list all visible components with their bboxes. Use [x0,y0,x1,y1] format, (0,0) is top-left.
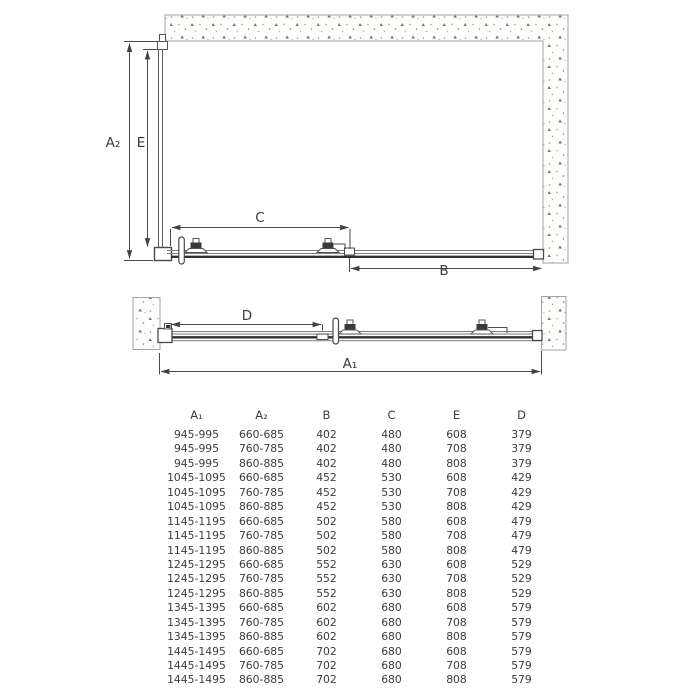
table-cell: 808 [424,587,489,601]
wall-section [165,15,568,263]
column-header-a1: A₁ [164,404,229,426]
table-cell: 608 [424,558,489,572]
table-cell: 680 [359,645,424,659]
table-cell: 608 [424,471,489,485]
table-cell: 660-685 [229,428,294,442]
table-cell: 608 [424,428,489,442]
door-handle [179,237,185,264]
table-cell: 1445-1495 [164,659,229,673]
table-cell: 808 [424,630,489,644]
table-cell: 429 [489,471,554,485]
table-cell: 660-685 [229,515,294,529]
technical-drawing [0,0,700,400]
table-cell: 552 [294,558,359,572]
top-view [124,15,568,272]
table-cell: 580 [359,544,424,558]
roller-carriage [339,320,361,334]
table-cell: 552 [294,572,359,586]
dim-label-b: B [439,263,448,279]
table-cell: 1445-1495 [164,673,229,687]
dim-label-c: C [255,210,264,226]
table-cell: 1145-1195 [164,515,229,529]
table-cell: 760-785 [229,616,294,630]
column-header-b: B [294,404,359,426]
table-cell: 760-785 [229,442,294,456]
table-cell: 860-885 [229,457,294,471]
table-cell: 1345-1395 [164,630,229,644]
wall-profile-top [158,42,168,50]
table-cell: 1245-1295 [164,558,229,572]
table-cell: 379 [489,457,554,471]
table-cell: 1145-1195 [164,544,229,558]
table-cell: 708 [424,616,489,630]
table-cell: 608 [424,645,489,659]
size-table: A₁ A₂ B C E D 945-995660-685402480608379… [164,404,556,688]
table-cell: 452 [294,486,359,500]
table-cell: 530 [359,486,424,500]
table-cell: 552 [294,587,359,601]
dim-label-e: E [137,135,146,151]
table-cell: 860-885 [229,587,294,601]
wall-profile-left [158,329,172,343]
table-cell: 452 [294,500,359,514]
table-cell: 660-685 [229,601,294,615]
table-cell: 379 [489,428,554,442]
column-header-c: C [359,404,424,426]
table-cell: 379 [489,442,554,456]
table-cell: 808 [424,500,489,514]
table-cell: 630 [359,572,424,586]
table-cell: 429 [489,500,554,514]
table-cell: 630 [359,558,424,572]
table-cell: 479 [489,529,554,543]
table-cell: 708 [424,529,489,543]
table-cell: 579 [489,673,554,687]
table-cell: 708 [424,659,489,673]
size-table-header: A₁ A₂ B C E D [164,404,556,426]
table-cell: 580 [359,529,424,543]
table-cell: 680 [359,659,424,673]
table-cell: 402 [294,442,359,456]
table-cell: 702 [294,673,359,687]
dimension-d [170,325,323,331]
table-cell: 860-885 [229,630,294,644]
table-cell: 945-995 [164,442,229,456]
door-handle [333,318,339,344]
screw-head [166,325,170,328]
table-cell: 530 [359,500,424,514]
size-table-body: 945-995660-685402480608379945-995760-785… [164,428,556,688]
table-cell: 480 [359,457,424,471]
table-cell: 860-885 [229,500,294,514]
table-cell: 402 [294,457,359,471]
table-cell: 808 [424,544,489,558]
side-panel-glass [159,43,163,255]
table-cell: 1145-1195 [164,529,229,543]
table-cell: 660-685 [229,471,294,485]
spec-sheet: A₂ E C B D A₁ A₁ A₂ B C E D 945-995660-6… [0,0,700,700]
column-header-d: D [489,404,554,426]
table-cell: 660-685 [229,558,294,572]
table-cell: 680 [359,630,424,644]
table-cell: 680 [359,616,424,630]
wall-anchor [160,35,166,42]
table-cell: 760-785 [229,529,294,543]
table-cell: 1245-1295 [164,587,229,601]
table-cell: 429 [489,486,554,500]
table-cell: 680 [359,601,424,615]
table-cell: 479 [489,515,554,529]
table-cell: 945-995 [164,457,229,471]
track-top-view [167,244,544,259]
table-cell: 808 [424,457,489,471]
table-cell: 860-885 [229,544,294,558]
table-cell: 530 [359,471,424,485]
table-cell: 452 [294,471,359,485]
wall-block-right [542,297,567,351]
table-cell: 579 [489,659,554,673]
table-cell: 760-785 [229,659,294,673]
table-cell: 579 [489,601,554,615]
table-cell: 502 [294,529,359,543]
table-cell: 608 [424,515,489,529]
table-cell: 608 [424,601,489,615]
table-cell: 680 [359,673,424,687]
table-cell: 1445-1495 [164,645,229,659]
table-cell: 708 [424,442,489,456]
table-cell: 529 [489,558,554,572]
table-cell: 602 [294,601,359,615]
table-cell: 402 [294,428,359,442]
table-cell: 860-885 [229,673,294,687]
door-guide [317,334,328,340]
table-cell: 502 [294,544,359,558]
table-cell: 760-785 [229,572,294,586]
table-cell: 579 [489,616,554,630]
column-header-e: E [424,404,489,426]
table-cell: 708 [424,486,489,500]
table-cell: 602 [294,630,359,644]
panel-clamp [345,248,355,255]
dim-label-a1: A₁ [343,356,358,372]
table-cell: 602 [294,616,359,630]
dim-label-d: D [242,308,252,324]
roller-carriage [317,239,339,253]
table-cell: 660-685 [229,645,294,659]
table-cell: 1045-1095 [164,486,229,500]
table-cell: 579 [489,630,554,644]
table-cell: 702 [294,659,359,673]
table-cell: 1045-1095 [164,500,229,514]
wall-block-left [133,298,160,350]
table-cell: 502 [294,515,359,529]
roller-carriage [185,239,207,253]
table-cell: 630 [359,587,424,601]
roller-arm [334,244,345,249]
table-cell: 1345-1395 [164,616,229,630]
table-cell: 479 [489,544,554,558]
table-cell: 1345-1395 [164,601,229,615]
table-cell: 1245-1295 [164,572,229,586]
table-cell: 529 [489,587,554,601]
dim-label-a2: A₂ [106,135,121,151]
table-cell: 945-995 [164,428,229,442]
dimension-a2 [124,42,157,261]
track-end-cap [533,331,543,341]
table-cell: 580 [359,515,424,529]
table-cell: 702 [294,645,359,659]
column-header-a2: A₂ [229,404,294,426]
table-cell: 480 [359,442,424,456]
track-end-cap [534,250,544,260]
table-cell: 708 [424,572,489,586]
table-cell: 529 [489,572,554,586]
table-cell: 579 [489,645,554,659]
table-cell: 1045-1095 [164,471,229,485]
table-cell: 808 [424,673,489,687]
table-cell: 760-785 [229,486,294,500]
table-cell: 480 [359,428,424,442]
